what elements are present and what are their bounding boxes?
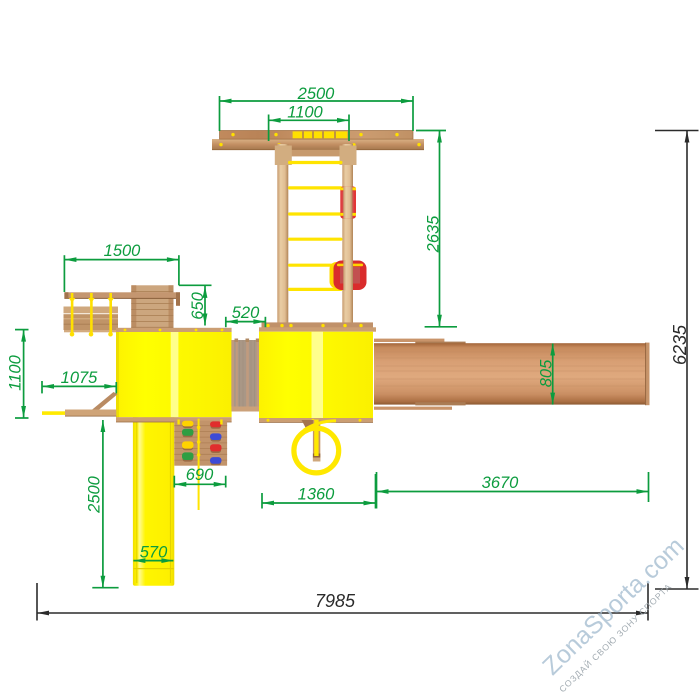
svg-text:1100: 1100 [287, 104, 323, 122]
svg-text:3670: 3670 [482, 474, 520, 492]
svg-text:805: 805 [538, 359, 556, 387]
svg-text:7985: 7985 [315, 591, 356, 611]
svg-text:2635: 2635 [425, 215, 443, 254]
svg-text:1360: 1360 [298, 486, 336, 504]
svg-text:1500: 1500 [104, 242, 142, 260]
svg-text:2500: 2500 [86, 475, 104, 514]
svg-text:650: 650 [189, 291, 207, 319]
svg-text:2500: 2500 [297, 85, 336, 103]
svg-text:1100: 1100 [7, 354, 25, 390]
svg-text:520: 520 [232, 304, 260, 322]
svg-text:6235: 6235 [670, 324, 690, 365]
svg-text:570: 570 [140, 544, 168, 562]
svg-text:1075: 1075 [61, 369, 99, 387]
svg-text:690: 690 [186, 466, 214, 484]
